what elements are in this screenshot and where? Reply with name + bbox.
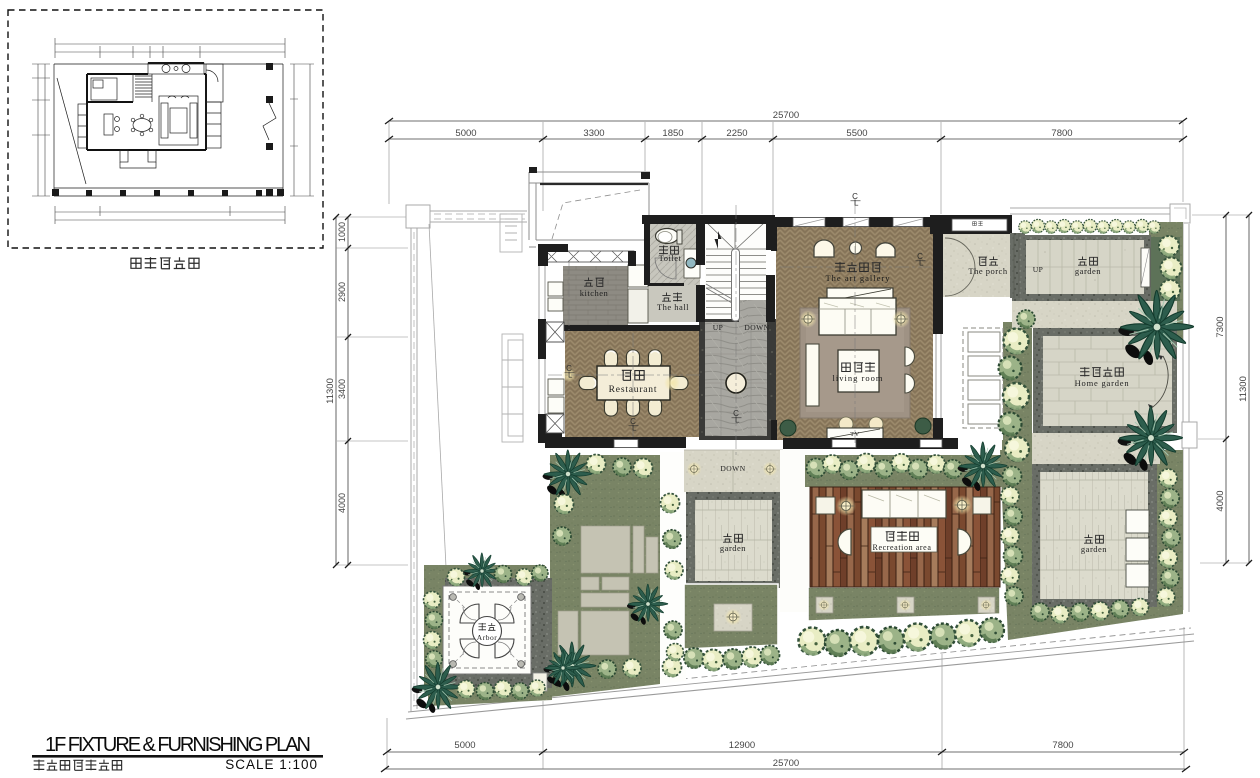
svg-text:12900: 12900: [729, 740, 755, 751]
svg-text:DOWN: DOWN: [744, 323, 769, 332]
svg-text:25700: 25700: [773, 758, 799, 769]
svg-text:garden: garden: [720, 543, 746, 553]
svg-text:kitchen: kitchen: [580, 288, 609, 298]
svg-text:25700: 25700: [773, 110, 799, 121]
svg-text:5000: 5000: [455, 128, 476, 139]
svg-text:Recreation area: Recreation area: [873, 543, 932, 552]
svg-text:7300: 7300: [1215, 316, 1226, 337]
svg-text:Toilet: Toilet: [659, 253, 682, 263]
svg-text:3300: 3300: [583, 128, 604, 139]
svg-text:DOWN: DOWN: [720, 464, 745, 473]
svg-text:Restaurant: Restaurant: [609, 385, 658, 395]
svg-text:TV: TV: [850, 431, 860, 438]
svg-text:The porch: The porch: [968, 266, 1007, 276]
svg-text:1850: 1850: [662, 128, 683, 139]
svg-text:The art gallery: The art gallery: [825, 273, 890, 283]
svg-text:Home garden: Home garden: [1075, 378, 1130, 388]
svg-text:4000: 4000: [337, 493, 347, 513]
svg-text:7800: 7800: [1052, 740, 1073, 751]
svg-text:2250: 2250: [726, 128, 747, 139]
svg-text:4000: 4000: [1215, 490, 1226, 511]
svg-text:7800: 7800: [1051, 128, 1072, 139]
svg-text:5000: 5000: [454, 740, 475, 751]
svg-text:11300: 11300: [1238, 376, 1249, 402]
svg-text:11300: 11300: [325, 378, 336, 404]
svg-text:garden: garden: [1081, 544, 1107, 554]
svg-text:living room: living room: [833, 373, 884, 383]
svg-text:5500: 5500: [846, 128, 867, 139]
svg-text:3400: 3400: [337, 379, 347, 399]
svg-text:Arbor: Arbor: [477, 633, 497, 642]
svg-text:2900: 2900: [337, 282, 347, 302]
svg-text:The hall: The hall: [657, 302, 689, 312]
svg-text:UP: UP: [1033, 265, 1044, 274]
svg-text:SCALE 1:100: SCALE 1:100: [225, 757, 318, 772]
svg-text:UP: UP: [713, 323, 724, 332]
svg-text:1F FIXTURE & FURNISHING PL: 1F FIXTURE & FURNISHING PLAN: [45, 734, 311, 756]
svg-text:1000: 1000: [337, 222, 347, 242]
svg-text:garden: garden: [1075, 266, 1101, 276]
